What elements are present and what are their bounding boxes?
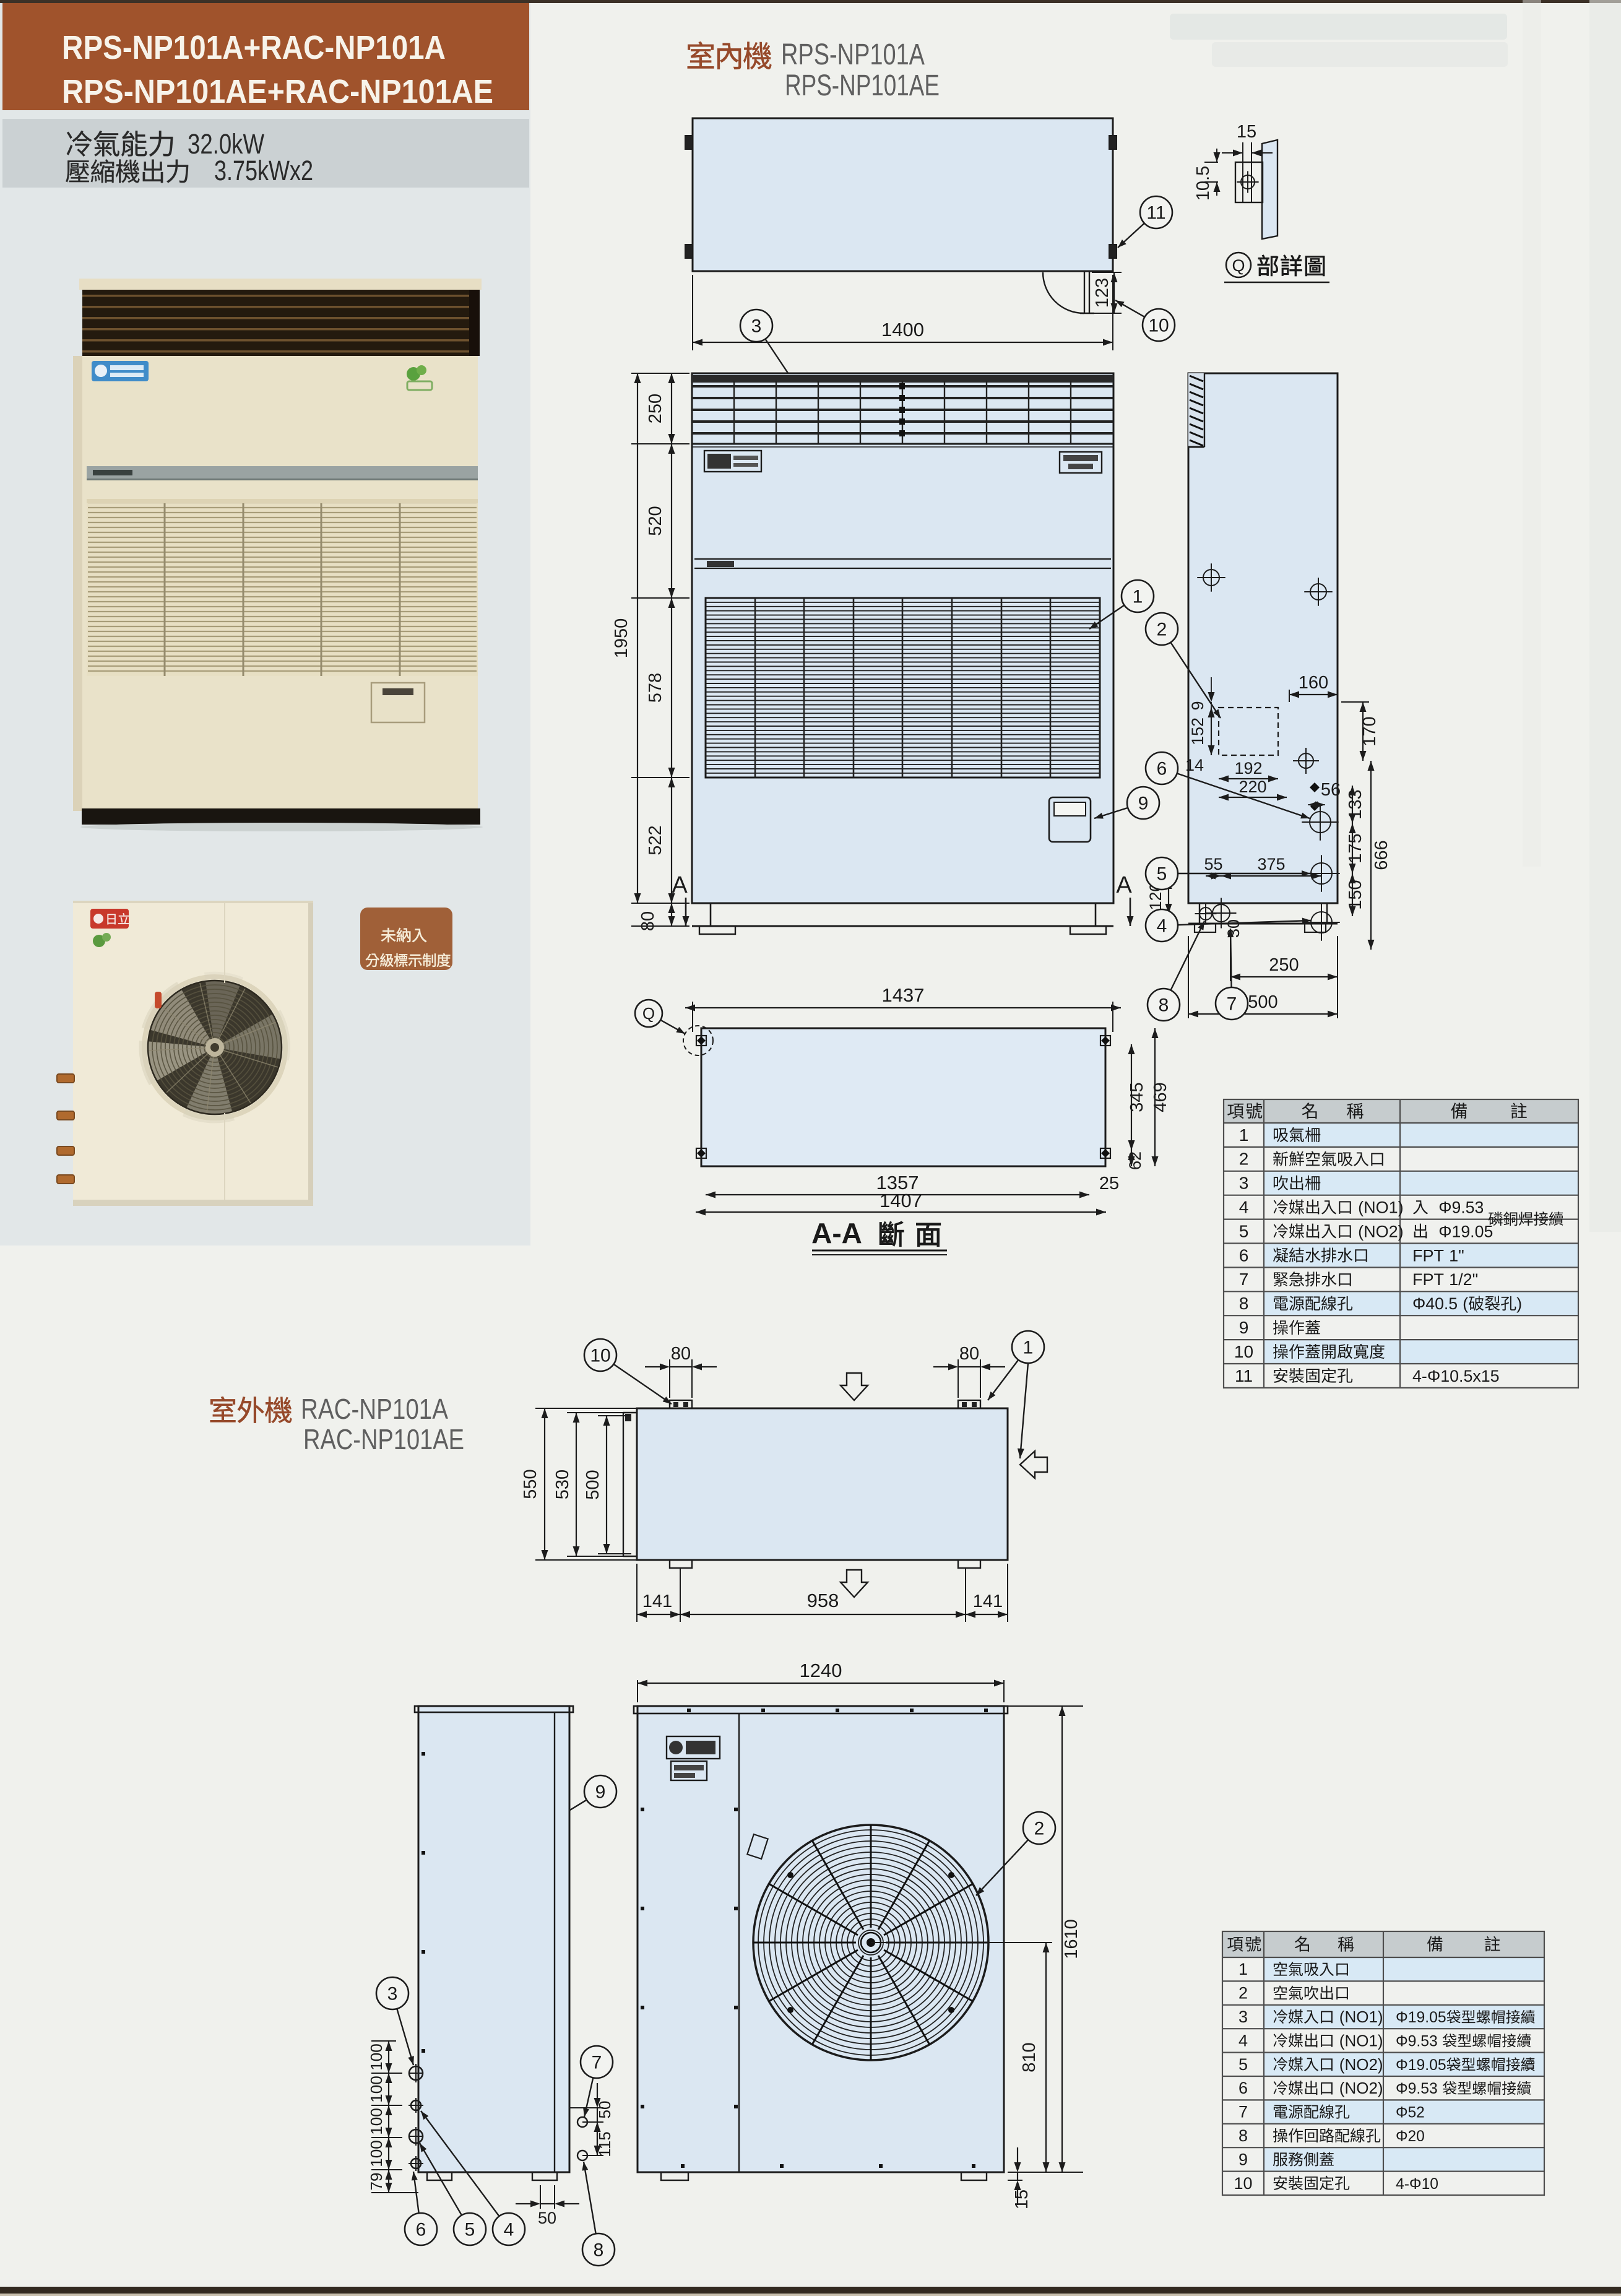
- svg-text:15: 15: [1012, 2190, 1032, 2209]
- svg-text:(: (: [1463, 1294, 1468, 1313]
- svg-text:8: 8: [594, 2240, 604, 2261]
- svg-text:6: 6: [1238, 2079, 1248, 2097]
- svg-text:6: 6: [1157, 759, 1167, 779]
- svg-text:7: 7: [592, 2053, 602, 2073]
- svg-text:62: 62: [1126, 1151, 1144, 1170]
- svg-text:10: 10: [590, 1346, 610, 1366]
- svg-text:9: 9: [1238, 2150, 1248, 2168]
- svg-text:15: 15: [1237, 122, 1256, 142]
- svg-text:RPS-NP101A+RAC-NP101A: RPS-NP101A+RAC-NP101A: [62, 29, 446, 66]
- svg-text:1950: 1950: [612, 618, 631, 659]
- svg-text:11: 11: [1235, 1366, 1253, 1385]
- svg-text:7: 7: [1239, 1270, 1249, 1289]
- svg-text:3.75kWx2: 3.75kWx2: [214, 155, 313, 186]
- svg-text:345: 345: [1127, 1082, 1147, 1112]
- svg-text:(NO2): (NO2): [1339, 2055, 1383, 2074]
- svg-text:8: 8: [1159, 995, 1169, 1016]
- svg-text:2: 2: [1238, 1984, 1248, 2003]
- svg-text:10: 10: [1234, 2174, 1252, 2193]
- svg-text:10.5: 10.5: [1193, 166, 1213, 201]
- svg-text:170: 170: [1360, 716, 1380, 746]
- svg-text:79: 79: [367, 2173, 386, 2191]
- svg-text:4: 4: [1239, 1198, 1249, 1217]
- svg-text:Φ52: Φ52: [1396, 2104, 1425, 2121]
- svg-text:8: 8: [1238, 2126, 1248, 2145]
- svg-text:530: 530: [553, 1470, 573, 1499]
- svg-text:30: 30: [1224, 919, 1243, 938]
- svg-text:Φ19.05: Φ19.05: [1396, 2056, 1446, 2074]
- svg-text:133: 133: [1346, 789, 1365, 819]
- svg-text:141: 141: [642, 1592, 672, 1611]
- svg-text:550: 550: [521, 1469, 540, 1499]
- svg-text:1400: 1400: [881, 319, 924, 340]
- svg-text:FPT: FPT: [1412, 1246, 1444, 1265]
- svg-text:500: 500: [1248, 992, 1277, 1012]
- svg-text:RPS-NP101A: RPS-NP101A: [781, 38, 925, 71]
- svg-text:50: 50: [538, 2209, 556, 2227]
- svg-text:5: 5: [465, 2220, 475, 2240]
- svg-text:): ): [1516, 1294, 1522, 1313]
- svg-text:25: 25: [1099, 1174, 1119, 1193]
- svg-text:220: 220: [1238, 778, 1266, 796]
- svg-text:100: 100: [367, 2140, 386, 2167]
- svg-text:100: 100: [367, 2108, 386, 2134]
- svg-text:FPT: FPT: [1412, 1270, 1444, 1289]
- svg-text:150: 150: [1346, 880, 1365, 909]
- svg-text:10: 10: [1148, 316, 1169, 336]
- svg-text:A-A: A-A: [811, 1217, 862, 1249]
- svg-text:10: 10: [1234, 1342, 1253, 1361]
- svg-text:80: 80: [638, 911, 658, 931]
- svg-text:578: 578: [646, 673, 665, 703]
- svg-text:2: 2: [1157, 620, 1167, 640]
- svg-text:666: 666: [1372, 840, 1391, 870]
- svg-text:2: 2: [1034, 1819, 1045, 1839]
- svg-text:56: 56: [1321, 780, 1341, 800]
- svg-text:5: 5: [1157, 864, 1167, 885]
- svg-text:4-Φ10: 4-Φ10: [1396, 2175, 1438, 2193]
- svg-text:7: 7: [1227, 994, 1237, 1015]
- svg-text:115: 115: [595, 2131, 614, 2157]
- svg-text:4: 4: [1157, 916, 1167, 937]
- svg-text:175: 175: [1346, 833, 1365, 863]
- svg-text:11: 11: [1146, 203, 1165, 223]
- svg-text:4: 4: [504, 2220, 514, 2240]
- svg-text:810: 810: [1019, 2042, 1039, 2072]
- svg-text:(NO1): (NO1): [1339, 2008, 1383, 2026]
- svg-text:3: 3: [1238, 2008, 1248, 2026]
- svg-text:Φ20: Φ20: [1396, 2128, 1425, 2145]
- svg-text:1/2": 1/2": [1449, 1270, 1478, 1289]
- svg-text:2: 2: [1239, 1150, 1249, 1169]
- svg-text:1: 1: [1238, 1960, 1248, 1978]
- svg-text:100: 100: [367, 2043, 386, 2070]
- svg-text:80: 80: [959, 1344, 979, 1364]
- svg-text:Φ40.5: Φ40.5: [1412, 1294, 1458, 1313]
- svg-text:4: 4: [1238, 2031, 1248, 2050]
- svg-text:1: 1: [1239, 1125, 1249, 1145]
- svg-text:3: 3: [387, 1984, 398, 2004]
- svg-text:RAC-NP101AE: RAC-NP101AE: [303, 1423, 464, 1455]
- svg-text:Q: Q: [642, 1004, 655, 1023]
- svg-text:1407: 1407: [880, 1190, 922, 1211]
- svg-text:500: 500: [583, 1470, 603, 1499]
- svg-text:160: 160: [1299, 673, 1328, 693]
- svg-text:250: 250: [1269, 955, 1299, 975]
- svg-text:469: 469: [1151, 1082, 1170, 1112]
- svg-text:141: 141: [973, 1592, 1003, 1611]
- svg-text:14: 14: [1185, 756, 1204, 774]
- svg-text:Q: Q: [1232, 256, 1245, 275]
- svg-text:375: 375: [1257, 855, 1285, 873]
- svg-text:8: 8: [1239, 1294, 1249, 1313]
- svg-text:6: 6: [416, 2220, 426, 2240]
- svg-text:152: 152: [1188, 717, 1207, 745]
- svg-text:192: 192: [1234, 759, 1262, 778]
- svg-text:(NO1): (NO1): [1358, 1198, 1404, 1217]
- svg-text:520: 520: [646, 506, 665, 535]
- svg-text:3: 3: [751, 316, 762, 337]
- svg-text:9: 9: [1239, 1318, 1249, 1337]
- svg-text:522: 522: [646, 825, 665, 855]
- svg-text:RPS-NP101AE+RAC-NP101AE: RPS-NP101AE+RAC-NP101AE: [62, 73, 493, 110]
- svg-text:1: 1: [1023, 1338, 1034, 1358]
- svg-text:3: 3: [1239, 1174, 1249, 1193]
- svg-text:Φ19.05: Φ19.05: [1396, 2009, 1446, 2026]
- svg-text:1437: 1437: [882, 984, 925, 1006]
- svg-text:(NO2): (NO2): [1339, 2079, 1383, 2097]
- svg-text:A: A: [1116, 872, 1132, 898]
- svg-text:RAC-NP101A: RAC-NP101A: [301, 1393, 448, 1425]
- svg-text:80: 80: [671, 1344, 691, 1364]
- svg-text:50: 50: [595, 2101, 614, 2119]
- svg-text:1610: 1610: [1061, 1919, 1081, 1959]
- svg-text:123: 123: [1092, 278, 1112, 308]
- svg-text:9: 9: [595, 1782, 606, 1803]
- svg-text:7: 7: [1238, 2103, 1248, 2121]
- svg-text:Φ9.53: Φ9.53: [1438, 1198, 1484, 1217]
- svg-text:4-Φ10.5x15: 4-Φ10.5x15: [1412, 1367, 1500, 1385]
- svg-text:5: 5: [1238, 2055, 1248, 2074]
- svg-text:250: 250: [646, 394, 665, 423]
- svg-text:(NO2): (NO2): [1358, 1222, 1404, 1241]
- svg-text:Φ9.53: Φ9.53: [1396, 2032, 1438, 2050]
- svg-text:1: 1: [1133, 587, 1143, 607]
- svg-text:1": 1": [1449, 1246, 1464, 1265]
- svg-text:958: 958: [807, 1590, 839, 1611]
- svg-text:9: 9: [1138, 794, 1149, 814]
- svg-text:5: 5: [1239, 1221, 1249, 1241]
- svg-text:100: 100: [367, 2076, 386, 2102]
- svg-text:Φ19.05: Φ19.05: [1438, 1222, 1493, 1241]
- svg-text:55: 55: [1204, 855, 1222, 873]
- svg-text:6: 6: [1239, 1245, 1249, 1265]
- svg-text:1240: 1240: [800, 1660, 842, 1681]
- svg-text:(NO1): (NO1): [1339, 2031, 1383, 2050]
- svg-text:Φ9.53: Φ9.53: [1396, 2080, 1438, 2097]
- svg-text:9: 9: [1188, 701, 1207, 710]
- svg-text:RPS-NP101AE: RPS-NP101AE: [785, 69, 940, 102]
